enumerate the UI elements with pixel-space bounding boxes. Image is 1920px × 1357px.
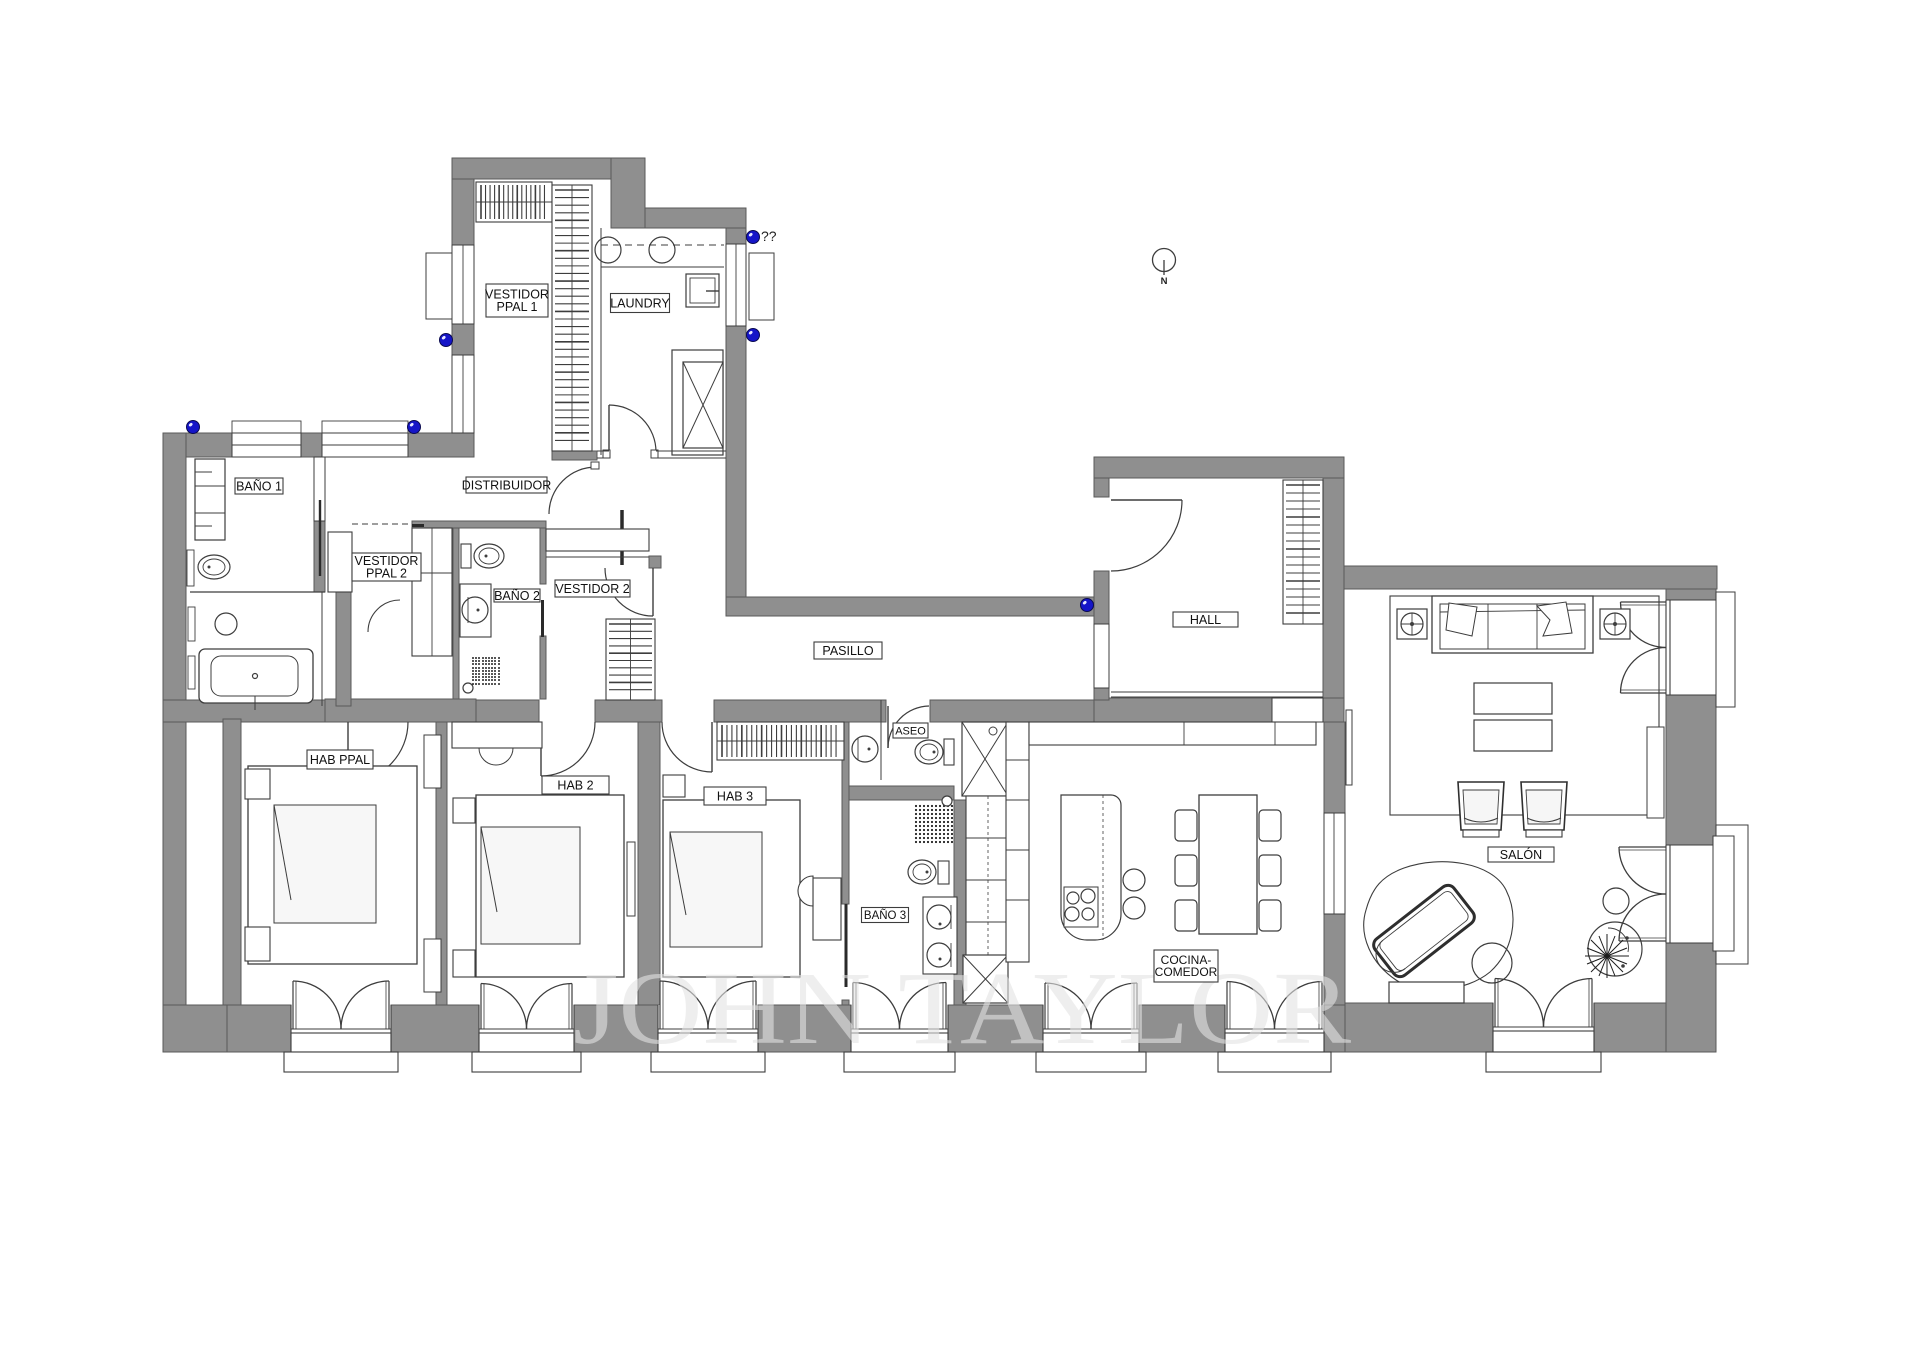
svg-text:COMEDOR: COMEDOR	[1155, 965, 1218, 979]
svg-text:HAB 3: HAB 3	[717, 789, 753, 803]
svg-text:BAÑO 1: BAÑO 1	[236, 479, 282, 493]
svg-text:N: N	[1161, 276, 1168, 287]
svg-text:??: ??	[761, 228, 777, 244]
svg-text:DISTRIBUIDOR: DISTRIBUIDOR	[462, 478, 552, 492]
svg-text:ASEO: ASEO	[895, 725, 926, 737]
svg-text:LAUNDRY: LAUNDRY	[610, 296, 670, 310]
svg-text:SALÓN: SALÓN	[1500, 847, 1542, 862]
svg-text:PPAL 2: PPAL 2	[366, 567, 407, 581]
svg-text:VESTIDOR 2: VESTIDOR 2	[555, 582, 629, 596]
svg-text:HAB 2: HAB 2	[557, 778, 593, 792]
svg-text:JOHN TAYLOR: JOHN TAYLOR	[573, 951, 1352, 1066]
svg-text:PPAL 1: PPAL 1	[497, 300, 538, 314]
svg-text:BAÑO 2: BAÑO 2	[494, 589, 540, 603]
svg-text:HAB PPAL: HAB PPAL	[310, 753, 370, 767]
svg-text:HALL: HALL	[1190, 613, 1221, 627]
svg-text:BAÑO 3: BAÑO 3	[864, 909, 906, 922]
svg-text:PASILLO: PASILLO	[822, 644, 873, 658]
